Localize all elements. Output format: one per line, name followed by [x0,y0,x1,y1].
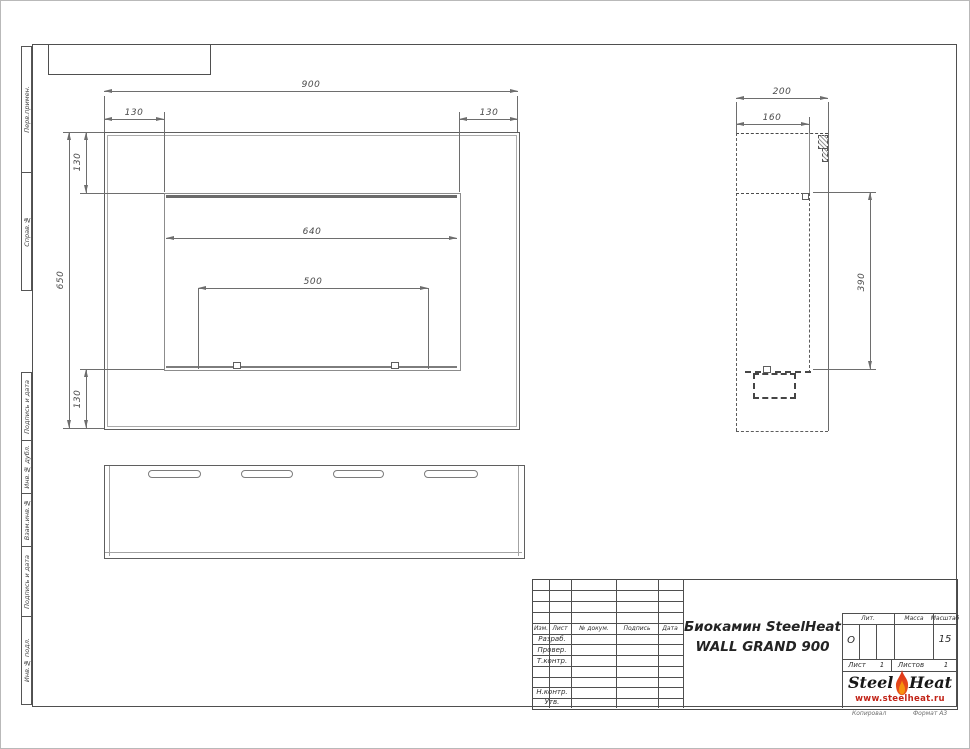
tb-lit-label: Лит. [861,615,875,622]
dim-200-line [736,98,828,99]
arrowhead [67,132,71,140]
logo-heat-text: Heat [909,673,952,692]
bottom-inner-left [109,466,110,556]
dim-130t-line [86,132,87,193]
ext-line [428,288,429,369]
ext-line [198,288,199,369]
arrowhead [510,89,518,93]
arrowhead [801,122,809,126]
tb-col-podpis: Подпись [624,625,651,632]
dim-650-label: 650 [56,271,66,290]
tb-vline [876,624,877,659]
dim-200-label: 200 [773,87,792,97]
arrowhead [868,361,872,369]
margin-label: Взам.инв.№ [23,499,31,540]
tb-col-izm: Изм. [534,625,548,632]
tb-col-list: Лист [552,625,567,632]
dim-130l-label: 130 [125,108,144,118]
side-burner-tab [763,366,771,373]
dim-640-line [166,238,457,239]
arrowhead [84,132,88,140]
ext-line [813,369,876,370]
margin-cell-podpis-data-2: Подпись и дата [21,546,32,617]
arrowhead [166,236,174,240]
tb-mass-label: Масса [904,615,923,622]
tb-scale-label: Масштаб [931,615,960,622]
arrowhead [104,89,112,93]
drawing-sheet: Перв.примен. Справ.№ Подпись и дата Инв.… [0,0,970,749]
arrowhead [459,117,467,121]
dim-650-line [69,132,70,428]
tb-row-utv: Утв. [545,698,560,706]
ext-line [809,117,810,133]
tb-col-data: Дата [662,625,678,632]
tb-row-prover: Провер. [537,646,566,654]
tb-sheet-value: 1 [880,661,884,669]
footer-format-label: Формат А3 [913,710,947,717]
side-front-face-hidden [809,193,810,373]
logo-steel-text: Steel [848,673,893,692]
dim-640-label: 640 [303,227,322,237]
ext-line [813,192,876,193]
margin-label: Справ.№ [23,216,31,247]
tb-hline [532,612,683,613]
tb-vline [894,613,895,659]
product-title-line1: Биокамин SteelHeat [683,617,842,637]
margin-cell-inv-podl: Инв.№ подл. [21,616,32,705]
margin-label: Подпись и дата [23,380,31,434]
margin-cell-vzam-inv: Взам.инв.№ [21,493,32,547]
tb-sheets-value: 1 [944,661,948,669]
ext-line [104,96,105,132]
bottom-inner-bottom [105,552,522,553]
arrowhead [84,369,88,377]
tb-hline [532,601,683,602]
arrowhead [156,117,164,121]
dim-900-line [104,91,518,92]
side-wall-bracket-top [818,135,828,149]
tb-hline [532,677,683,678]
tb-hline [532,666,683,667]
ext-line [164,112,165,192]
arrowhead [198,286,206,290]
dim-160-line [736,124,809,125]
product-title-line2: WALL GRAND 900 [683,637,842,657]
side-top-edge [736,133,828,134]
ext-line [736,102,737,133]
dim-130t-label: 130 [73,153,83,172]
arrowhead [67,420,71,428]
logo-url-text: www.steelheat.ru [844,694,956,704]
front-burner-tab-right [391,362,399,369]
arrowhead [736,122,744,126]
dim-500-label: 500 [304,277,323,287]
tb-hline [842,613,956,614]
tb-lit-value: О [847,635,855,646]
footer-copy-label: Копировал [852,710,886,717]
front-opening-bottom-edge [166,366,457,368]
dim-390-label: 390 [857,273,867,292]
margin-label: Инв.№ подл. [23,638,31,682]
margin-cell-perv-primen: Перв.примен. [21,46,32,173]
ext-line [80,193,164,194]
margin-label: Инв.№ дубл. [23,445,31,489]
margin-cell-inv-dubl: Инв.№ дубл. [21,440,32,494]
tb-sheet-label: Лист [848,661,866,669]
vent-slot-3 [333,470,384,478]
margin-cell-podpis-data-1: Подпись и дата [21,372,32,441]
arrowhead [736,96,744,100]
ext-line [63,428,104,429]
steelheat-logo: Steel Heat www.steelheat.ru [844,671,956,707]
side-opening-top-line [736,193,809,194]
tb-hline [842,659,956,660]
margin-label: Подпись и дата [23,555,31,609]
side-burner-box [753,373,796,399]
front-burner-tab-left [233,362,241,369]
tb-row-nkontr: Н.контр. [536,688,567,696]
dim-130l-line [104,119,164,120]
vent-slot-4 [424,470,478,478]
dim-130b-label: 130 [73,390,83,409]
product-title: Биокамин SteelHeat WALL GRAND 900 [683,617,842,657]
tb-vline [842,613,843,708]
arrowhead [820,96,828,100]
dim-130r-label: 130 [480,108,499,118]
arrowhead [510,117,518,121]
bottom-inner-right [518,466,519,556]
side-bottom-edge [736,431,828,432]
margin-cell-sprav-no: Справ.№ [21,172,32,291]
front-opening-top-edge [166,195,457,198]
arrowhead [84,420,88,428]
tb-hline [532,644,683,645]
side-left-edge [736,133,737,431]
side-right-edge [828,133,829,431]
tb-hline [532,590,683,591]
ext-line [80,369,164,370]
ext-line [828,102,829,133]
bottom-outer-rect [104,465,525,559]
tb-row-razrab: Разраб. [538,635,566,643]
side-front-face-line [809,133,810,193]
side-opening-tab [802,193,809,200]
arrowhead [449,236,457,240]
tb-row-tkontr: Т.контр. [537,657,567,665]
tb-scale-value: 15 [939,634,952,645]
tb-sheets-label: Листов [898,661,924,669]
tb-col-ndokum: № докум. [579,625,609,632]
dim-500-line [198,288,428,289]
margin-label: Перв.примен. [23,86,31,133]
top-left-ref-box [48,44,211,75]
arrowhead [420,286,428,290]
side-wall-bracket-leg [822,148,828,162]
tb-hline [532,655,683,656]
arrowhead [84,185,88,193]
dim-900-label: 900 [302,80,321,90]
dim-160-label: 160 [763,113,782,123]
vent-slot-1 [148,470,201,478]
arrowhead [868,192,872,200]
tb-vline [859,624,860,659]
ext-line [459,112,460,192]
vent-slot-2 [241,470,293,478]
arrowhead [104,117,112,121]
tb-hline [532,623,683,624]
ext-line [517,96,518,132]
dim-390-line [870,192,871,369]
